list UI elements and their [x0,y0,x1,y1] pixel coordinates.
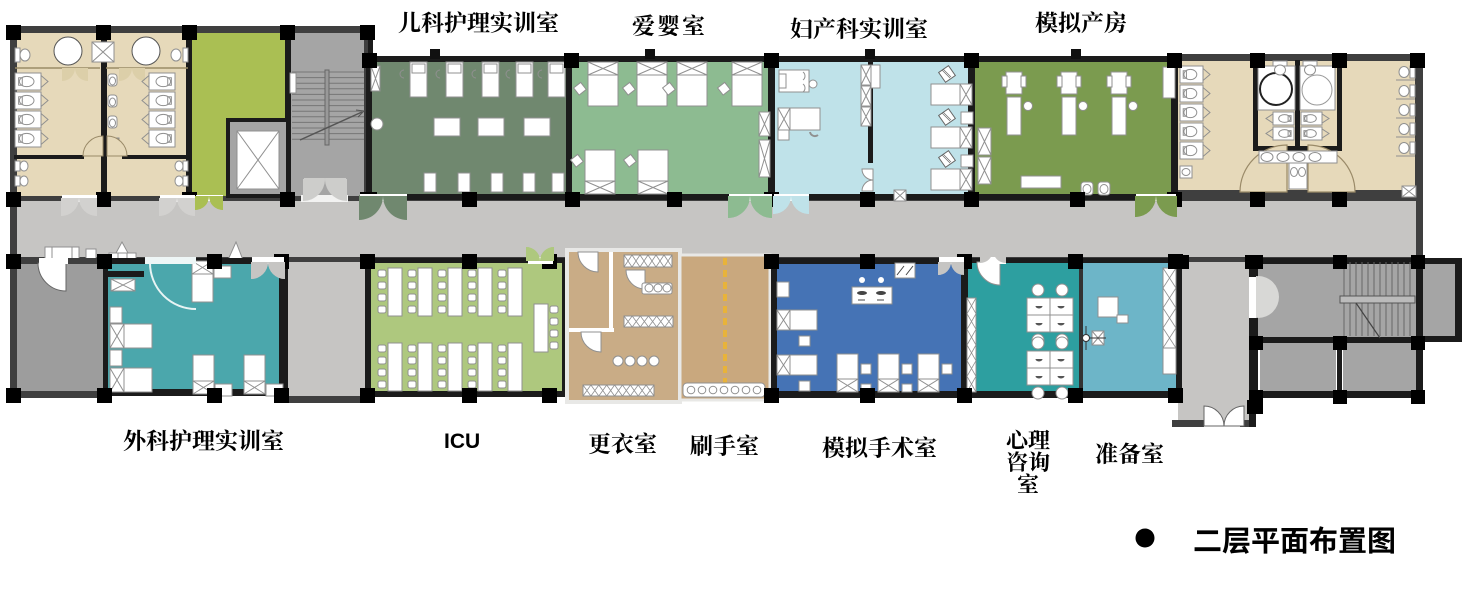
svg-text:ICU: ICU [444,430,480,453]
